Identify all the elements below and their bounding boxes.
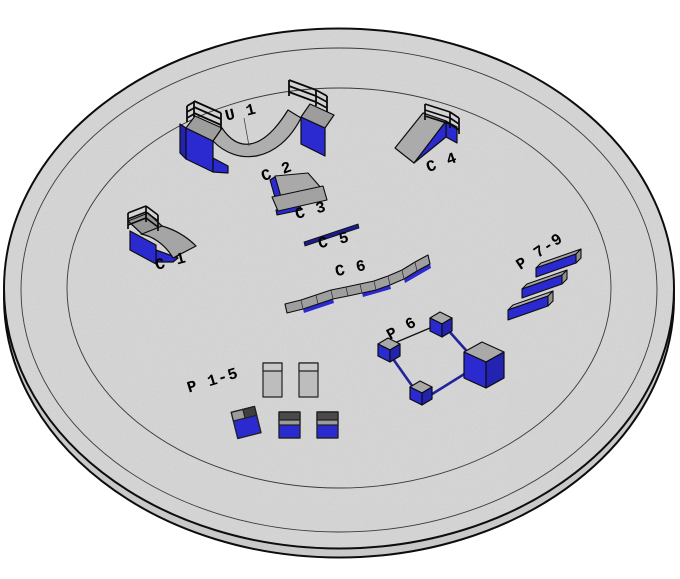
scene-canvas xyxy=(0,0,680,579)
skatepark-3d-render: U 1 C 1 C 2 C 3 C 4 C 5 C 6 P 6 P 7-9 P … xyxy=(0,0,680,579)
